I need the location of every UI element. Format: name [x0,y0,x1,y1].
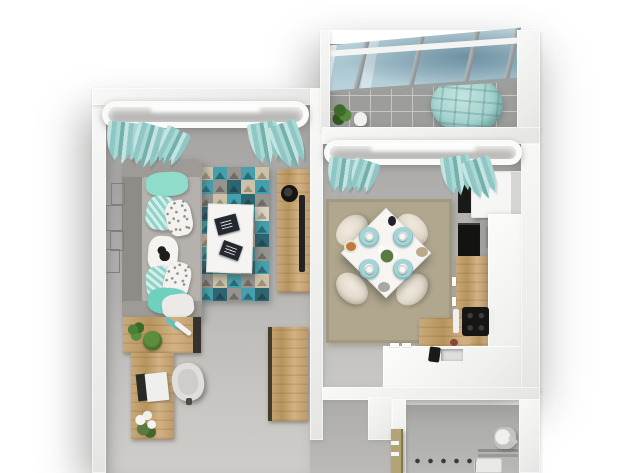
towel-bar [453,309,459,333]
frame-icon [105,249,120,273]
rug-cell [255,194,269,207]
vase-with-flowers [132,408,160,438]
cooktop [462,307,489,336]
rug-cell [213,167,227,180]
watering-can [354,112,367,126]
balcony-plant [331,102,353,126]
wall-hall-jog [368,397,392,440]
wall-balcony-right [517,30,540,130]
cup [365,232,374,241]
rug-cell [227,274,241,287]
sideboard-side-panel [193,317,201,353]
speaker [281,185,298,202]
frame-icon [111,183,125,205]
door-jamb-mark [391,452,399,456]
cup [398,232,407,241]
cat-graphic [157,246,171,262]
bathroom-door [391,429,403,473]
rug-cell [255,207,269,220]
rug-cell [227,167,241,180]
frame-icon [106,205,123,231]
rug-cell [213,180,227,193]
laptop-keyboard [145,372,170,402]
rug-cell [255,288,269,301]
cabinet-handle [402,343,411,347]
moss-bowl [143,331,162,350]
rug-cell [241,167,255,180]
mint-throw-pillow [145,171,188,197]
wall-kitchen-right [521,144,540,392]
frame-icon [110,231,124,251]
sink-faucet [428,346,441,362]
sink-basin [441,349,463,361]
oven [458,223,480,260]
floorplan-scene [0,0,640,473]
rug-cell [227,180,241,193]
rug-cell [255,274,269,287]
rug-cell [213,274,227,287]
rug-cell [255,261,269,274]
bottle [388,216,396,226]
rug-cell [241,180,255,193]
cabinet-handle [390,343,399,347]
bread-plate [346,242,356,251]
wardrobe-edge [268,327,272,421]
bowl-tan [416,247,428,257]
wall-bathroom-right [519,399,540,473]
wall-kitchen-bottom [322,387,540,400]
wall-left-outer [92,88,106,473]
chair-base-leg [186,398,192,405]
wardrobe [268,327,308,421]
wall-hooks-row [411,457,473,465]
potted-plant [127,322,144,341]
wall-frames [103,183,127,279]
spice-jar [450,339,458,346]
washing-machine [474,458,502,473]
cabinet-handle [452,297,456,306]
cabinet-handle [452,277,456,286]
rug-cell [241,288,255,301]
rug-cell [255,221,269,234]
rug-cell [255,180,269,193]
towel-bar-2 [490,309,495,333]
bowl-gray [378,282,390,292]
flower-centerpiece [374,241,400,267]
rug-cell [241,274,255,287]
rug-cell [227,288,241,301]
rug-cell [255,167,269,180]
rug-cell [255,234,269,247]
rug-cell [255,247,269,260]
plumbing-pipes [478,449,518,452]
rug-cell [213,288,227,301]
cup [365,265,374,274]
tv-panel [299,195,305,272]
window-light [371,144,475,151]
window-light [151,105,260,112]
wall-balcony-left [320,30,330,130]
door-jamb-mark [391,441,399,445]
